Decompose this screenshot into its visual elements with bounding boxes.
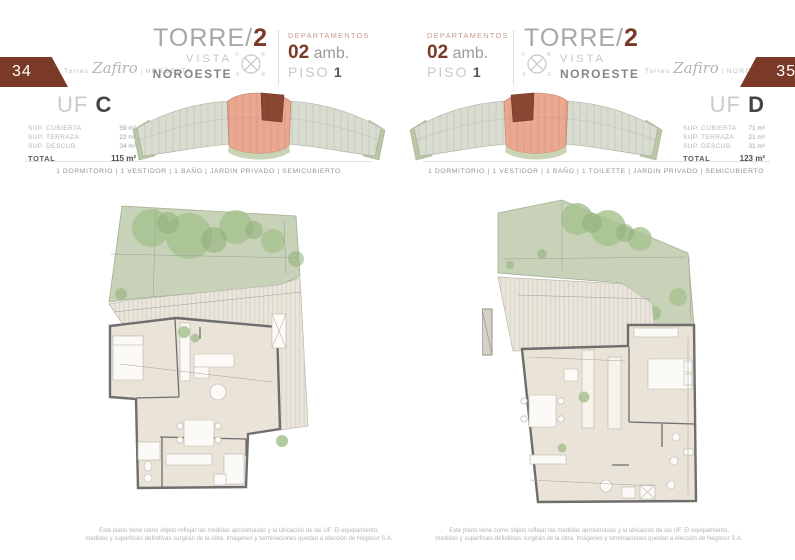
section-rule-left — [25, 161, 372, 162]
surface-row: SUP. DESCUB.34 m² — [28, 142, 136, 151]
floor-plan-uf-d — [482, 197, 722, 515]
piso-value: 1 — [334, 64, 342, 80]
uf-label: UF — [57, 92, 88, 117]
page-number: 34 — [12, 63, 32, 81]
piso-label: PISO — [427, 64, 468, 80]
amb-line: 02 amb. — [288, 43, 370, 62]
disclaimer-line-1: Este plano tiene como objeto reflejar la… — [424, 528, 754, 536]
compass-n: N — [261, 52, 265, 58]
uf-letter: D — [748, 92, 765, 117]
surface-row: SUP. CUBIERTA59 m² — [28, 124, 136, 133]
amb-unit: amb. — [453, 45, 489, 62]
surface-row: SUP. CUBIERTA71 m² — [683, 124, 765, 133]
dept-block-right: DEPARTAMENTOS 02 amb. PISO 1 — [427, 31, 509, 81]
uf-letter: C — [95, 92, 112, 117]
torre-heading: TORRE/2 — [120, 26, 268, 51]
torre-number: 2 — [253, 24, 268, 52]
surface-row: SUP. DESCUB.31 m² — [683, 142, 765, 151]
floor-plan-uf-c — [96, 196, 311, 506]
torre-number: 2 — [624, 24, 639, 52]
brochure-spread: 34 Torres Zafiro | NORDELTA TORRE/2 VIST… — [0, 0, 795, 560]
section-rule-right — [423, 161, 770, 162]
amb-unit: amb. — [314, 45, 350, 62]
amb-line: 02 amb. — [427, 43, 509, 62]
page-number-badge-left: 34 — [0, 57, 68, 87]
dept-label: DEPARTAMENTOS — [427, 31, 509, 40]
dept-block-left: DEPARTAMENTOS 02 amb. PISO 1 — [288, 31, 370, 81]
surface-row: SUP. TERRAZA22 m² — [28, 133, 136, 142]
disclaimer-line-2: medidas y superficies definitivas surgir… — [78, 536, 400, 544]
compass-o: O — [235, 52, 239, 58]
page-number: 35 — [776, 63, 795, 81]
brand-divider: | — [722, 68, 724, 75]
dept-label: DEPARTAMENTOS — [288, 31, 370, 40]
torre-label: TORRE/ — [524, 24, 624, 52]
brand-prefix: Torres — [645, 68, 670, 75]
compass-e: E — [262, 72, 266, 78]
uf-title-right: UF D — [660, 94, 765, 116]
torre-label: TORRE/ — [153, 24, 253, 52]
compass-s: S — [236, 72, 240, 78]
surface-row: SUP. TERRAZA21 m² — [683, 133, 765, 142]
piso-label: PISO — [288, 64, 329, 80]
surface-table-left: SUP. CUBIERTA59 m² SUP. TERRAZA22 m² SUP… — [28, 124, 136, 163]
uf-title-left: UF C — [57, 94, 112, 116]
key-plan-right — [405, 84, 667, 168]
features-line-right: 1 DORMITORIO | 1 VESTIDOR | 1 BAÑO | 1 T… — [397, 168, 795, 175]
header-divider-right — [513, 30, 514, 85]
torre-heading: TORRE/2 — [524, 26, 674, 51]
piso-line: PISO 1 — [427, 65, 509, 81]
piso-value: 1 — [473, 64, 481, 80]
uf-label: UF — [710, 92, 741, 117]
disclaimer-right: Este plano tiene como objeto reflejar la… — [424, 528, 754, 543]
page-number-badge-right: 35 — [740, 57, 795, 87]
disclaimer-line-1: Este plano tiene como objeto reflejar la… — [78, 528, 400, 536]
brand-script: Zafiro — [673, 63, 719, 73]
key-plan-left — [128, 84, 390, 168]
features-line-left: 1 DORMITORIO | 1 VESTIDOR | 1 BAÑO | JAR… — [0, 168, 397, 175]
compass-icon: N E S O — [234, 49, 268, 79]
header-divider-left — [278, 30, 279, 85]
disclaimer-line-2: medidas y superficies definitivas surgir… — [424, 536, 754, 544]
amb-value: 02 — [288, 42, 309, 63]
brand-prefix: Torres — [64, 68, 89, 75]
piso-line: PISO 1 — [288, 65, 370, 81]
amb-value: 02 — [427, 42, 448, 63]
surface-table-right: SUP. CUBIERTA71 m² SUP. TERRAZA21 m² SUP… — [683, 124, 765, 163]
disclaimer-left: Este plano tiene como objeto reflejar la… — [78, 528, 400, 543]
